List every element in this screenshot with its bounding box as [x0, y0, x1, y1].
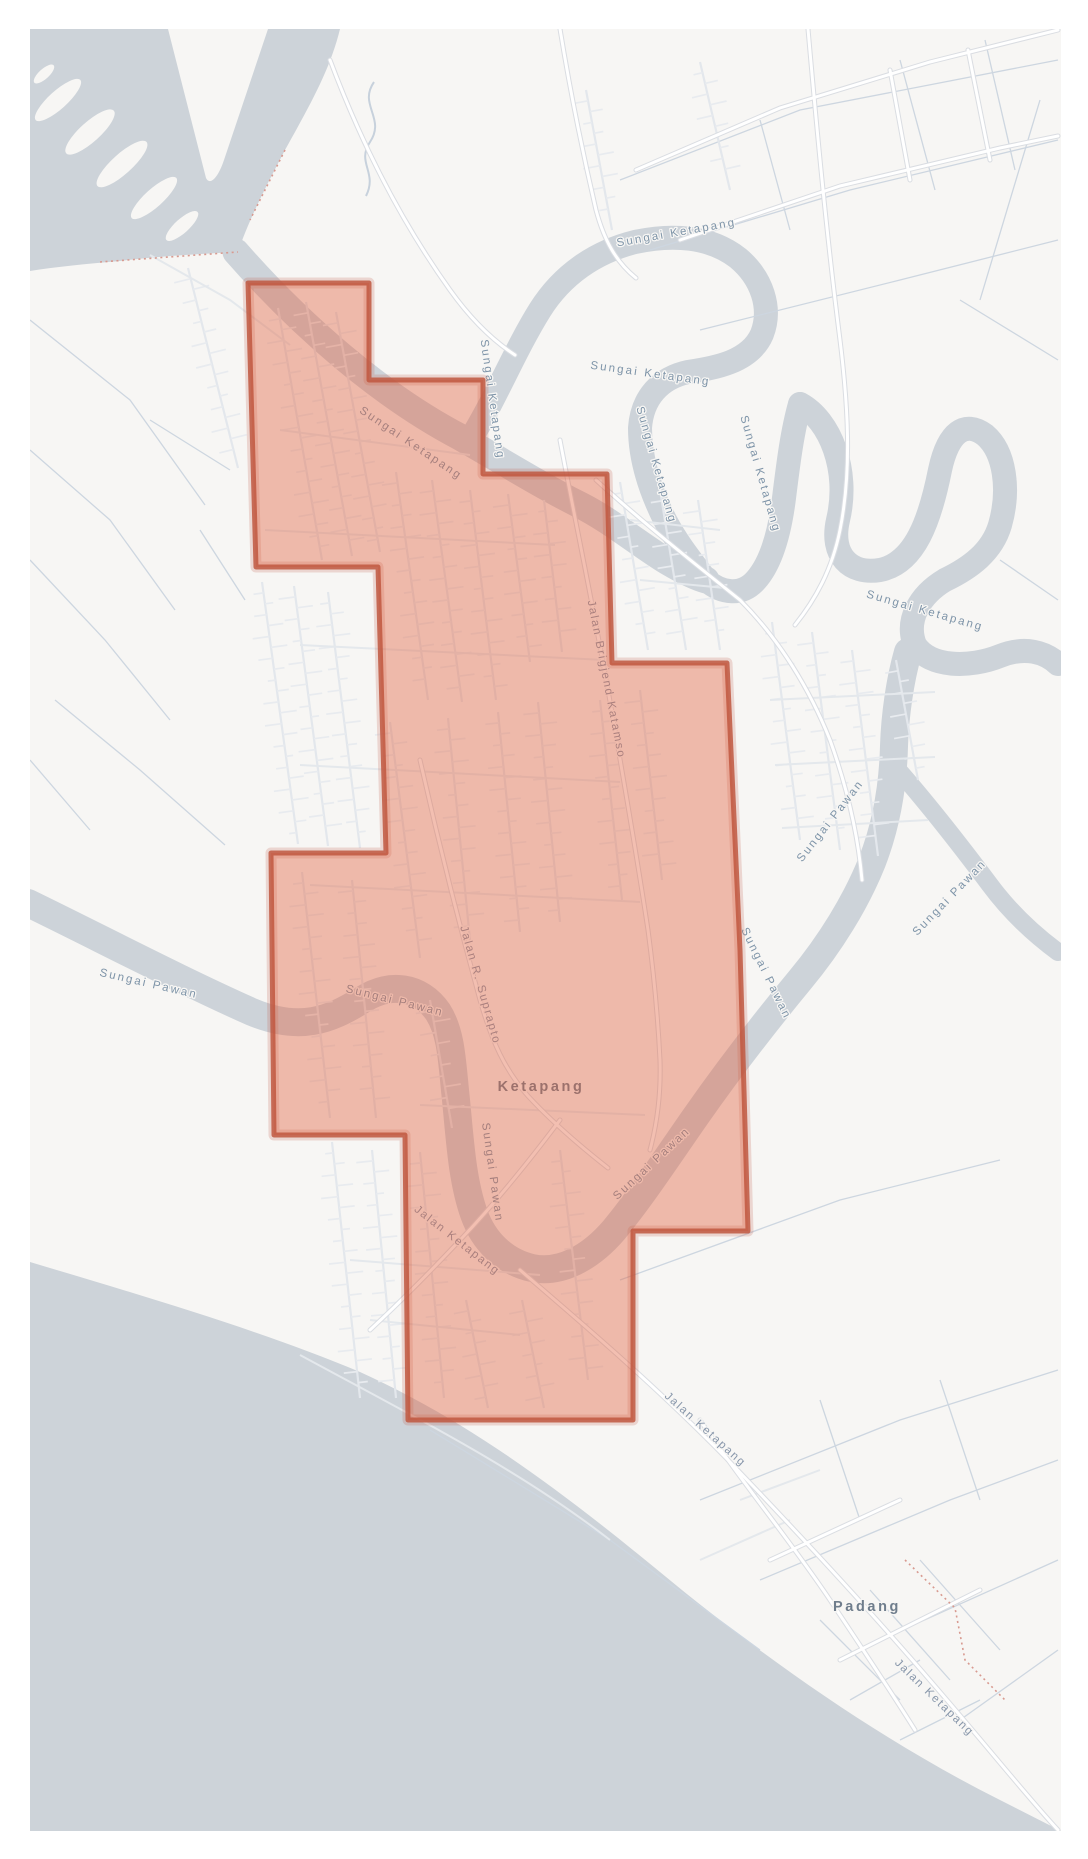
- map-canvas[interactable]: Sungai Ketapang Sungai Ketapang Sungai K…: [0, 0, 1088, 1859]
- map-screenshot-page: Sungai Ketapang Sungai Ketapang Sungai K…: [0, 0, 1088, 1859]
- city-label-padang: Padang: [833, 1599, 901, 1615]
